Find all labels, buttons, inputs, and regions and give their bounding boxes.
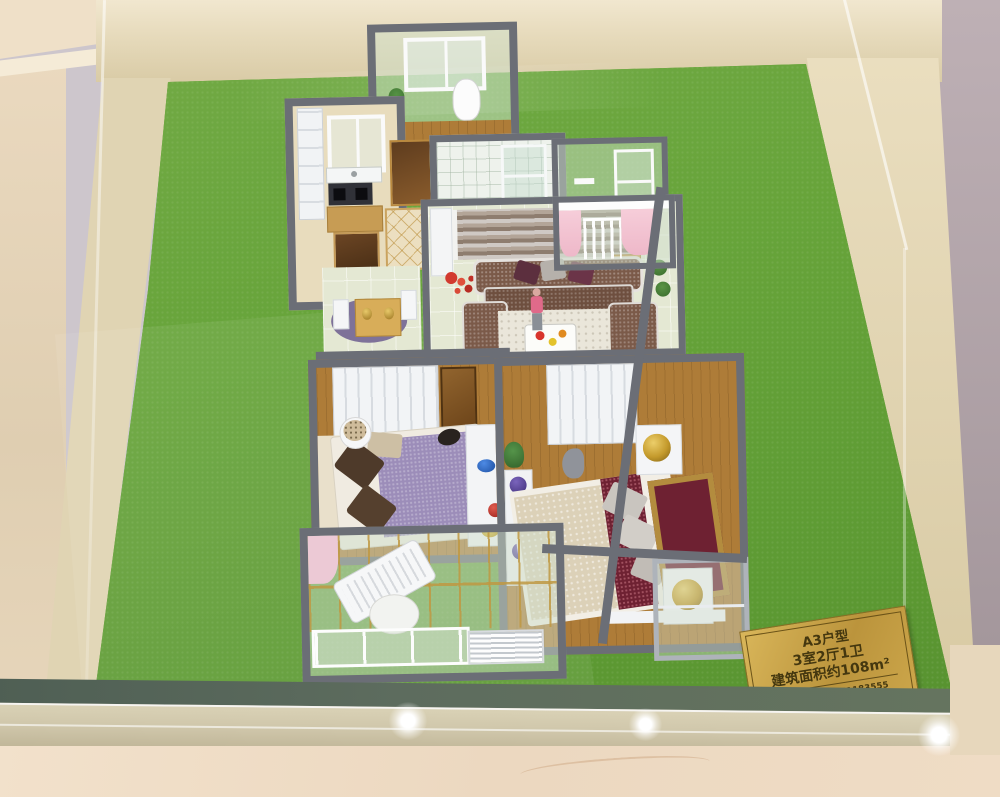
study-chair (452, 78, 481, 121)
nightstand (635, 424, 682, 475)
kitchen-sink (326, 166, 382, 183)
figurine-torso (531, 296, 543, 313)
figurine-legs (532, 313, 542, 330)
potted-plant (504, 442, 525, 468)
balcony-railing (583, 217, 622, 259)
kitchen-cabinet-column (297, 108, 325, 221)
towel-rail (574, 178, 594, 184)
louver-shutter (468, 629, 545, 665)
marble-table-front (0, 746, 1000, 797)
pink-curtain-left (559, 210, 582, 256)
figurine-head (533, 288, 541, 296)
red-flower-bouquet (445, 272, 457, 284)
sideboard (430, 208, 453, 276)
window-frame-row (312, 627, 471, 668)
fruit-apple (535, 331, 544, 340)
kitchen-lower-cabinet (327, 205, 384, 232)
armchair-right (608, 302, 659, 355)
scene-photo: A3户型 3室2厅1卫 建筑面积约108m² 尚美模型：13851183555 (0, 0, 1000, 797)
topiary-plant (655, 281, 670, 296)
kitchen-stove (328, 183, 372, 206)
dining-chair (333, 299, 350, 329)
ceiling-light-reflection (389, 702, 427, 740)
dining-table (355, 298, 402, 337)
straw-hat (343, 420, 366, 441)
human-figurine (530, 288, 545, 332)
corner-glass-window (652, 557, 750, 661)
fruit-orange (558, 330, 566, 338)
ceiling-light-reflection (629, 708, 662, 741)
cat-figurine (562, 448, 585, 478)
dining-chair (401, 290, 418, 320)
fruit-banana (549, 338, 557, 346)
hallway-door (389, 139, 432, 206)
bottom-balcony (299, 523, 566, 684)
kitchen-window (327, 114, 386, 173)
dining-area (322, 266, 422, 354)
ceiling-light-reflection (918, 714, 960, 756)
gold-decor-ball (643, 433, 672, 462)
decor-ball-blue (477, 459, 495, 472)
